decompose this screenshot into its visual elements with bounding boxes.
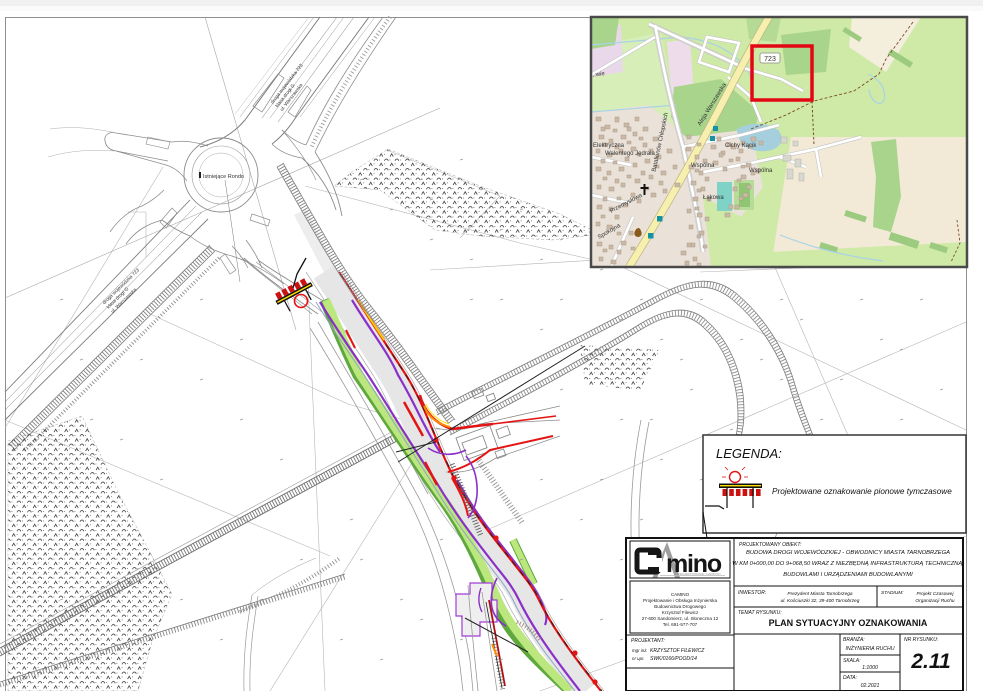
- svg-text:SKALA:: SKALA:: [843, 658, 861, 664]
- svg-text:NR RYSUNKU:: NR RYSUNKU:: [904, 637, 939, 643]
- svg-text:CAMINO: CAMINO: [671, 592, 690, 597]
- svg-text:Budownictwa Drogowego: Budownictwa Drogowego: [654, 604, 706, 609]
- svg-text:Prezydent Miasta Tarnobrzega: Prezydent Miasta Tarnobrzega: [787, 591, 852, 597]
- svg-text:PROJEKTANT:: PROJEKTANT:: [631, 638, 665, 644]
- svg-text:INWESTOR:: INWESTOR:: [738, 590, 767, 596]
- svg-text:BRANŻA:: BRANŻA:: [843, 636, 865, 643]
- svg-text:Tel. 691-577-707: Tel. 691-577-707: [663, 622, 698, 627]
- svg-text:723: 723: [764, 56, 776, 63]
- svg-text:mgr inż.: mgr inż.: [632, 648, 648, 653]
- svg-text:Organizacji Ruchu: Organizacji Ruchu: [915, 598, 955, 604]
- svg-text:Wspólna: Wspólna: [749, 168, 773, 174]
- svg-text:Istniejące Rondo: Istniejące Rondo: [203, 174, 244, 180]
- svg-text:DATA:: DATA:: [843, 675, 858, 681]
- svg-text:Walentego Jędrala: Walentego Jędrala: [605, 151, 655, 157]
- svg-text:Elektryczna: Elektryczna: [593, 143, 625, 149]
- svg-text:INŻYNIERIA RUCHU: INŻYNIERIA RUCHU: [845, 645, 894, 652]
- svg-text:1:1000: 1:1000: [862, 665, 878, 671]
- svg-text:LEGENDA:: LEGENDA:: [716, 446, 782, 461]
- svg-text:W KM 0+000,00 DO 9+068,50 WRAZ: W KM 0+000,00 DO 9+068,50 WRAZ Z NIEZBĘD…: [732, 561, 964, 567]
- svg-text:Projektowanie i Obsługa Inżyni: Projektowanie i Obsługa Inżynierska: [643, 598, 717, 603]
- svg-text:Projektowane oznakowanie piono: Projektowane oznakowanie pionowe tymczas…: [772, 487, 952, 496]
- svg-text:BUDOWA DROGI WOJEWÓDZKIEJ - OB: BUDOWA DROGI WOJEWÓDZKIEJ - OBWODNICY MI…: [746, 549, 950, 556]
- svg-text:27-600 Sandomierz, ul. Słonecz: 27-600 Sandomierz, ul. Słoneczna 12: [642, 616, 719, 621]
- svg-text:2.11: 2.11: [910, 650, 950, 673]
- svg-text:02.2021: 02.2021: [861, 683, 880, 689]
- svg-text:PLAN SYTUACYJNY OZNAKOWANIA: PLAN SYTUACYJNY OZNAKOWANIA: [769, 618, 928, 628]
- svg-text:PROJEKTOWANY OBIEKT:: PROJEKTOWANY OBIEKT:: [739, 542, 802, 548]
- svg-text:TEMAT RYSUNKU:: TEMAT RYSUNKU:: [738, 610, 782, 616]
- svg-text:Wspólna: Wspólna: [691, 163, 715, 169]
- svg-text:Krzysztof Filewicz: Krzysztof Filewicz: [662, 610, 699, 615]
- svg-text:ul. Kościuszki 32, 39-400 Tarn: ul. Kościuszki 32, 39-400 Tarnobrzeg: [781, 598, 860, 604]
- svg-text:STADIUM:: STADIUM:: [881, 590, 904, 596]
- svg-text:SWK/0166/POOD/14: SWK/0166/POOD/14: [650, 656, 697, 662]
- svg-text:Łąkowa: Łąkowa: [703, 195, 724, 201]
- svg-text:PROJEKTOWANIE I NADZORY: PROJEKTOWANIE I NADZORY: [678, 572, 721, 576]
- svg-text:KRZYSZTOF FILEWICZ: KRZYSZTOF FILEWICZ: [650, 648, 705, 654]
- svg-text:Cichy Kącik: Cichy Kącik: [725, 143, 757, 149]
- svg-text:BUDOWLAMI I URZĄDZENIAMI BUDOW: BUDOWLAMI I URZĄDZENIAMI BUDOWLANYMI: [783, 572, 913, 578]
- svg-text:nr upr.: nr upr.: [632, 656, 645, 661]
- svg-text:Projekt Czasowej: Projekt Czasowej: [916, 591, 954, 597]
